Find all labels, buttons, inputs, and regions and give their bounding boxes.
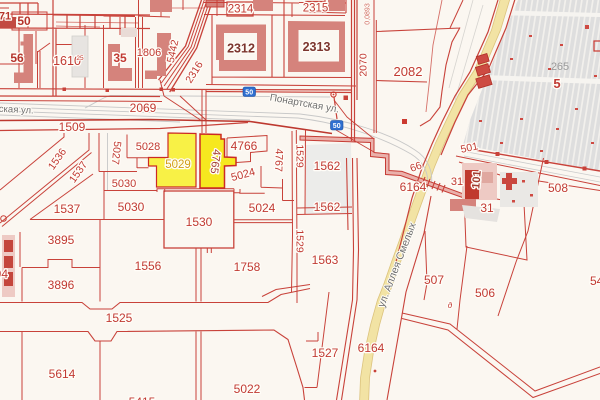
svg-text:5024: 5024 <box>249 201 276 215</box>
svg-text:5022: 5022 <box>234 382 261 396</box>
svg-text:1537: 1537 <box>54 202 81 216</box>
svg-text:1529: 1529 <box>294 229 306 253</box>
svg-text:2070: 2070 <box>358 53 370 77</box>
svg-text:5415: 5415 <box>129 395 156 400</box>
svg-text:5028: 5028 <box>136 141 160 153</box>
svg-text:50: 50 <box>245 89 253 96</box>
svg-text:1562: 1562 <box>314 200 341 214</box>
svg-text:3896: 3896 <box>48 278 75 292</box>
svg-text:507: 507 <box>424 273 444 287</box>
svg-text:д: д <box>448 301 453 310</box>
svg-text:1556: 1556 <box>135 259 162 273</box>
svg-text:5030: 5030 <box>112 178 136 190</box>
svg-text:5614: 5614 <box>49 367 76 381</box>
svg-text:тская ул.: тская ул. <box>0 103 34 116</box>
svg-text:50: 50 <box>333 123 341 130</box>
svg-text:2082: 2082 <box>394 64 423 79</box>
svg-text:25: 25 <box>76 55 84 62</box>
svg-text:265: 265 <box>551 61 569 73</box>
svg-text:1563: 1563 <box>312 253 339 267</box>
svg-text:506: 506 <box>475 286 495 300</box>
svg-text:5027: 5027 <box>109 141 123 166</box>
svg-text:6164: 6164 <box>358 341 385 355</box>
svg-text:1530: 1530 <box>186 215 213 229</box>
svg-text:546: 546 <box>590 274 600 288</box>
svg-text:2315: 2315 <box>303 3 329 15</box>
svg-text:2314: 2314 <box>228 4 254 16</box>
svg-text:1525: 1525 <box>106 311 133 325</box>
svg-text:71: 71 <box>0 11 11 23</box>
svg-text:5030: 5030 <box>118 200 145 214</box>
svg-text:35: 35 <box>113 51 127 65</box>
svg-text:5029: 5029 <box>165 159 191 171</box>
svg-text:3894: 3894 <box>0 267 8 281</box>
svg-text:1562: 1562 <box>314 159 341 173</box>
svg-text:2313: 2313 <box>303 40 331 54</box>
svg-text:3895: 3895 <box>48 233 75 247</box>
svg-text:31: 31 <box>480 201 494 215</box>
svg-text:1529: 1529 <box>294 144 306 168</box>
svg-text:1758: 1758 <box>234 260 261 274</box>
svg-text:4766: 4766 <box>231 139 258 153</box>
svg-text:1806: 1806 <box>137 47 161 59</box>
svg-text:2312: 2312 <box>227 42 255 56</box>
svg-text:2069: 2069 <box>130 101 157 115</box>
svg-text:50: 50 <box>17 14 31 28</box>
svg-text:4767: 4767 <box>272 148 285 172</box>
svg-text:1509: 1509 <box>59 120 86 134</box>
svg-text:101: 101 <box>470 170 484 189</box>
svg-text:5: 5 <box>553 76 560 91</box>
svg-text:508: 508 <box>548 181 568 195</box>
svg-text:56: 56 <box>10 51 24 65</box>
svg-text:1527: 1527 <box>312 346 339 360</box>
svg-text:6164: 6164 <box>400 180 427 194</box>
svg-text:31: 31 <box>451 176 463 188</box>
svg-text:0,0893: 0,0893 <box>365 3 372 25</box>
